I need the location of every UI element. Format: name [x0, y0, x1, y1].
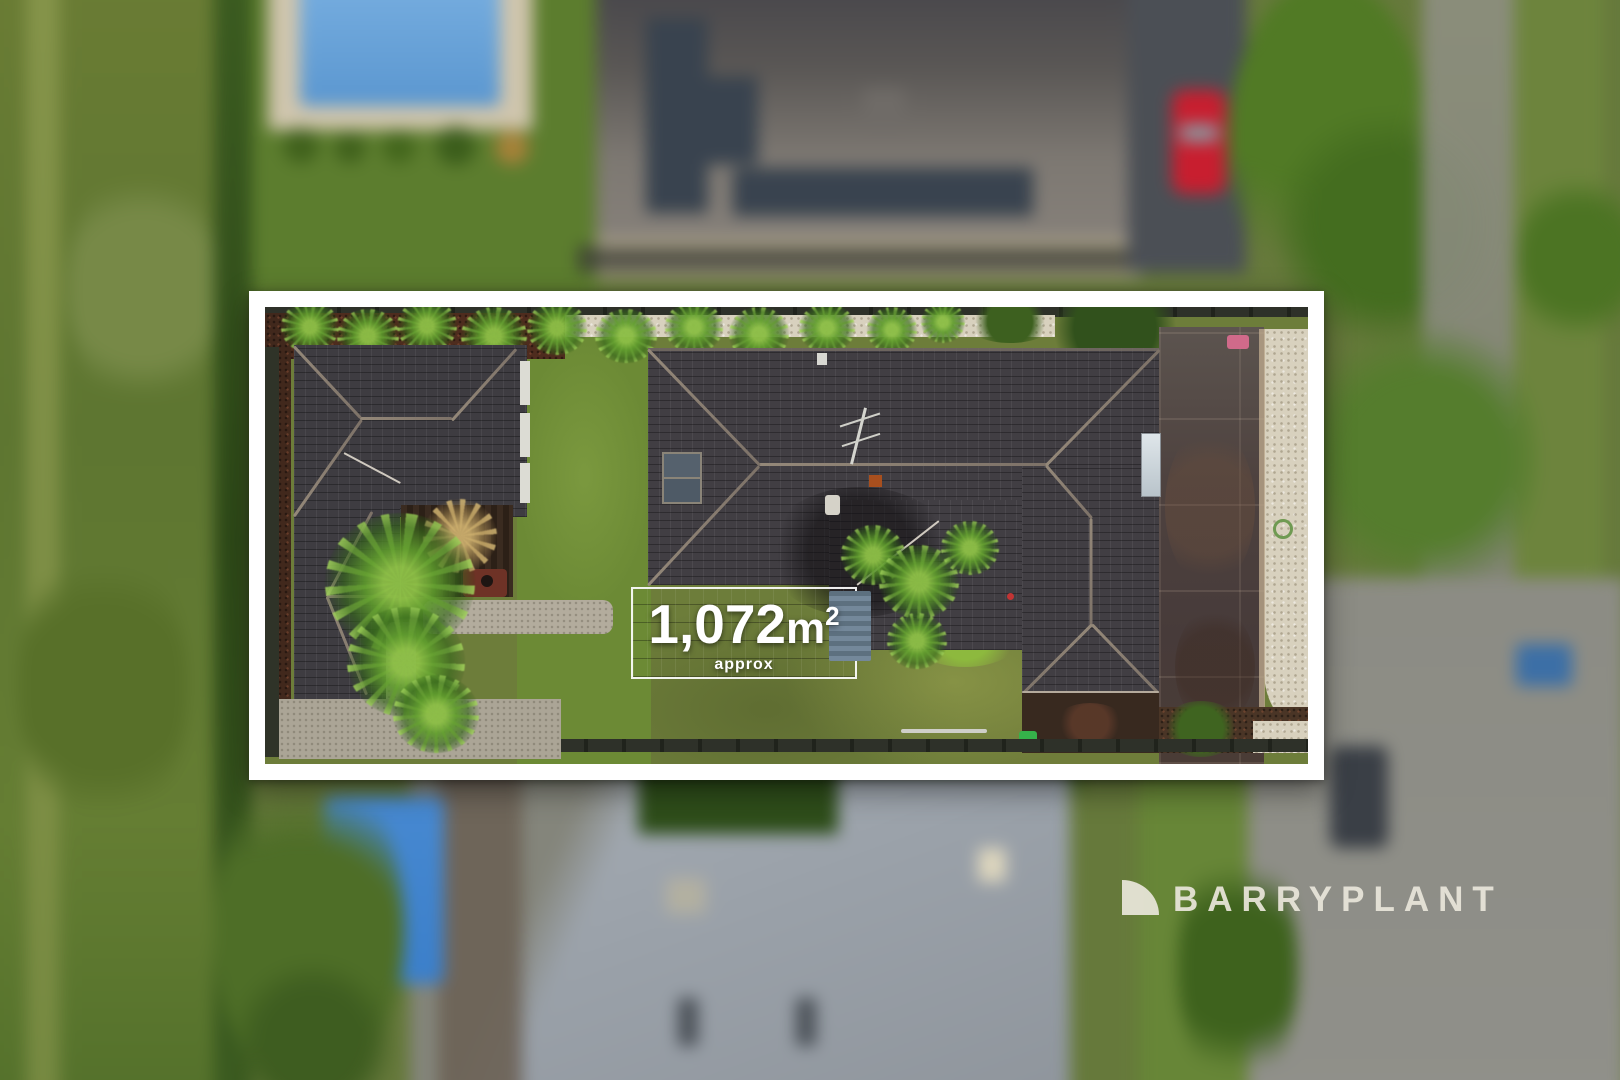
- aerial-property-photo: 1,072m2 approx BARRYPLANT: [0, 0, 1620, 1080]
- shrub-orange: [490, 128, 534, 168]
- hose-ring: [1273, 519, 1293, 539]
- red-car-windshield: [1180, 124, 1218, 142]
- orange-roof-box: [869, 475, 882, 487]
- roof-ridge-central: [759, 463, 1049, 466]
- land-area-qualifier: approx: [714, 656, 773, 674]
- field-patch: [68, 158, 218, 418]
- agency-brand-name: BARRYPLANT: [1173, 886, 1503, 915]
- red-toy-dot: [1007, 593, 1014, 600]
- secondary-dwelling-roof-upper: [294, 345, 527, 517]
- pool-top-left: [300, 0, 500, 106]
- roof-skylight-small: [817, 353, 827, 365]
- shrub-row: [330, 130, 370, 166]
- roof-vent: [678, 998, 698, 1046]
- roof-eave-highlight: [648, 348, 1159, 351]
- chimney-box: [666, 878, 706, 914]
- roof-ridge-right-vertical: [1090, 519, 1093, 627]
- shrub-row: [278, 126, 324, 166]
- dark-parked-car: [1330, 746, 1388, 848]
- firepit: [481, 575, 493, 587]
- roof-vent: [796, 998, 816, 1046]
- hedge-bottom-right: [1178, 838, 1298, 1080]
- gravel-edge-stones: [1259, 329, 1265, 709]
- barry-plant-logo-icon: [1122, 880, 1159, 915]
- blue-bin: [1516, 644, 1572, 686]
- roof-hatch: [863, 88, 905, 130]
- shrub-row: [378, 128, 420, 166]
- roof-vent-white: [825, 495, 840, 515]
- cream-item-bottom: [978, 848, 1006, 882]
- dwelling-fascia-white: [520, 463, 530, 503]
- dwelling-fascia-white: [520, 361, 530, 405]
- white-pipe: [901, 729, 987, 733]
- agency-watermark: BARRYPLANT: [1122, 880, 1503, 915]
- side-fence-left: [265, 347, 279, 757]
- land-area-value: 1,072m2: [648, 597, 839, 652]
- deck-strip-bottom: [438, 738, 522, 1080]
- passage-stain: [1055, 703, 1125, 743]
- palm-right-of-shed: [887, 613, 947, 669]
- property-scene: 1,072m2 approx: [265, 307, 1308, 764]
- trees-right-mid: [1308, 308, 1538, 608]
- red-car: [1172, 90, 1226, 194]
- property-boundary-frame: 1,072m2 approx: [249, 291, 1324, 780]
- fence-top: [578, 246, 1153, 272]
- solar-array-row: [733, 168, 1033, 216]
- pink-toy: [1227, 335, 1249, 349]
- central-lawn: [517, 321, 651, 764]
- metal-skylight-right-eave: [1141, 433, 1161, 497]
- dwelling-ridge-h: [360, 417, 452, 420]
- driveway-stain: [1165, 427, 1255, 587]
- field-patch: [18, 538, 188, 838]
- solar-hot-water-panel: [662, 452, 702, 504]
- field-track: [26, 0, 60, 1080]
- palm-bottom: [393, 675, 479, 753]
- palm-right-of-shed: [941, 521, 999, 575]
- shrub-row: [430, 124, 482, 168]
- dwelling-fascia-white: [520, 413, 530, 457]
- land-area-label: 1,072m2 approx: [631, 597, 857, 674]
- hedge-palm: [867, 307, 917, 353]
- rear-fence-bottom: [550, 739, 1308, 752]
